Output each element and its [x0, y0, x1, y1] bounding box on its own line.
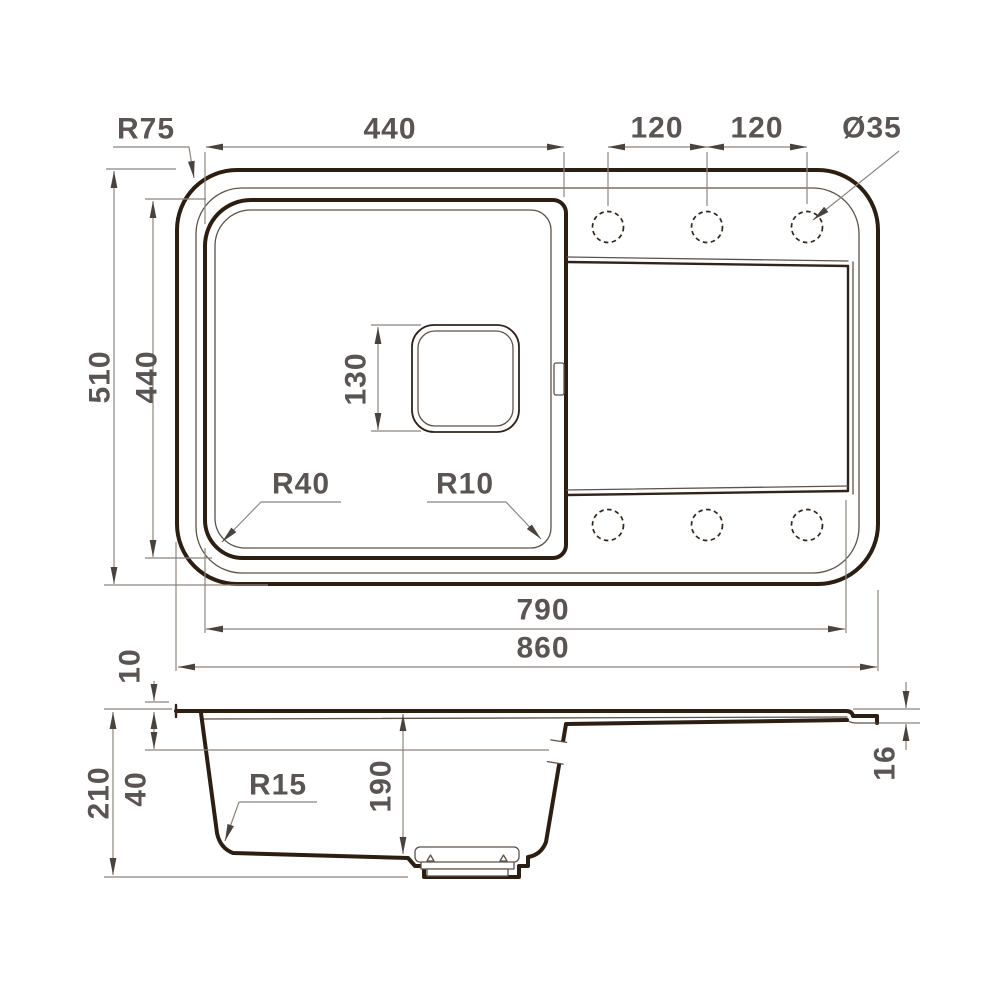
dim-label-bowl-corner-left: R40 [272, 468, 330, 501]
dim-label-bottom-corner-radius: R15 [249, 769, 307, 802]
faucet-hole [692, 510, 723, 541]
faucet-hole [792, 510, 823, 541]
dim-bowl-corner-right: R10 [427, 468, 541, 540]
side-view: 210 10 40 190 R15 16 [83, 648, 921, 877]
dim-hole-spacing: 120 120 [608, 112, 807, 207]
section-inner-top-line [202, 717, 847, 719]
dim-label-bowl-width: 440 [363, 113, 416, 146]
dim-corner-radius: R75 [113, 113, 194, 179]
drain-opening-outer [412, 325, 519, 432]
dim-label-overall-length: 860 [516, 632, 569, 665]
dim-label-bowl-corner-right: R10 [436, 468, 494, 501]
drainboard [567, 257, 853, 495]
dim-label-bowl-inner-depth: 190 [365, 759, 398, 812]
dim-bowl-inner-depth: 190 [365, 714, 404, 854]
dim-bowl-depth: 440 [131, 199, 213, 558]
dim-label-rim-height: 10 [114, 648, 147, 683]
dim-inner-length: 790 [205, 500, 846, 633]
dim-label-overall-depth: 510 [84, 350, 117, 403]
section-edge-underside [848, 721, 877, 723]
dim-label-ledge-depth: 40 [120, 771, 153, 806]
dim-label-corner-radius: R75 [117, 113, 175, 146]
overflow-slot [554, 363, 564, 395]
sink-rim-inner-line [196, 188, 859, 573]
dim-edge-thickness: 16 [853, 682, 920, 781]
section-overflow-slot [547, 740, 566, 764]
dim-bottom-corner-radius: R15 [225, 769, 317, 842]
sink-outer-edge [177, 170, 878, 584]
faucet-hole [593, 510, 624, 541]
drain-assembly [415, 847, 519, 876]
faucet-hole [593, 212, 624, 243]
dim-label-edge-thickness: 16 [869, 745, 902, 780]
dim-label-drain-size: 130 [340, 352, 373, 405]
dim-label-hole-spacing-left: 120 [630, 112, 683, 145]
dim-label-overall-height: 210 [83, 766, 116, 819]
faucet-hole [692, 212, 723, 243]
dim-label-hole-diameter: Ø35 [842, 112, 902, 145]
dim-hole-diameter: Ø35 [813, 112, 902, 221]
dim-label-hole-spacing-right: 120 [730, 112, 783, 145]
dim-rim-height: 10 [114, 648, 170, 702]
dim-bowl-corner-left: R40 [222, 468, 341, 543]
drawing-canvas: 440 R75 120 120 Ø35 510 [0, 0, 1000, 1000]
bowl-inner-line [215, 210, 551, 548]
sink-technical-drawing: 440 R75 120 120 Ø35 510 [0, 0, 1000, 1000]
dim-label-bowl-depth: 440 [131, 350, 164, 403]
drain-opening-inner [418, 331, 513, 426]
dim-ledge-depth: 40 [120, 712, 550, 807]
dim-label-inner-length: 790 [516, 594, 569, 627]
dim-drain-size: 130 [340, 325, 422, 431]
top-view: 440 R75 120 120 Ø35 510 [84, 112, 902, 672]
